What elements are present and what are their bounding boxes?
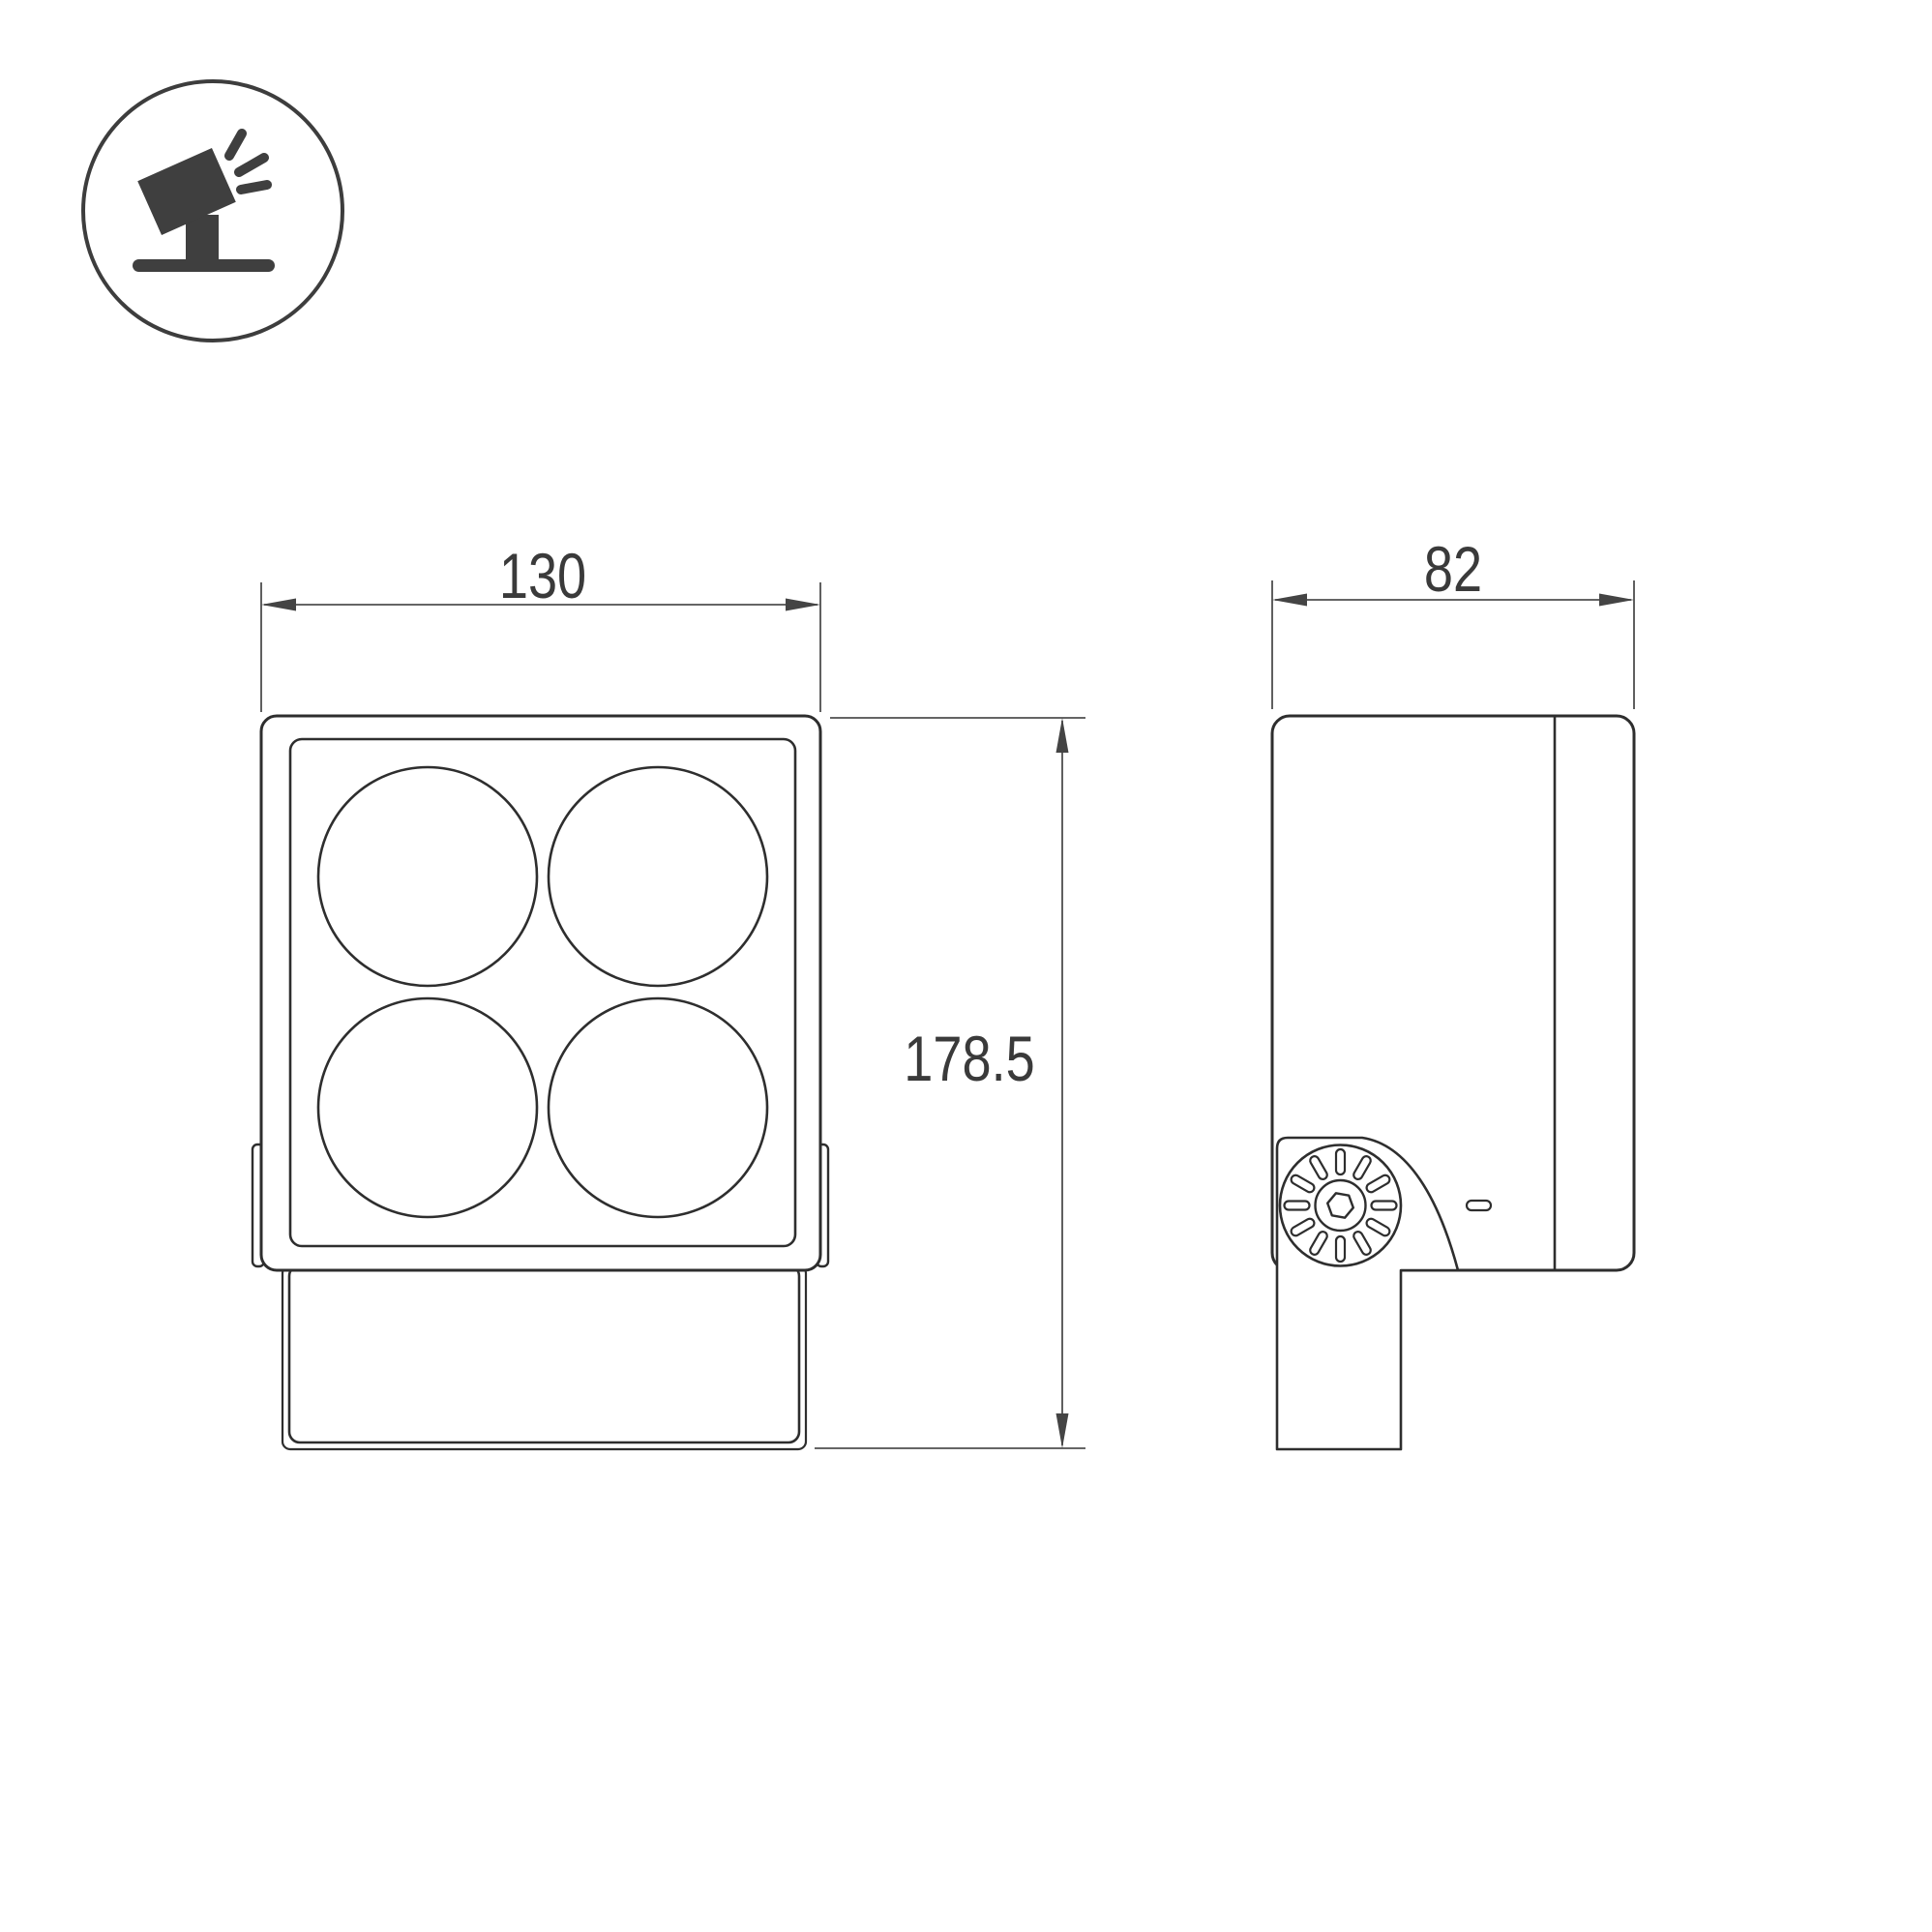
lens-top-left — [318, 767, 537, 986]
arrow-down-icon — [1056, 1413, 1069, 1448]
dim-label-overall-height: 178.5 — [904, 1023, 1034, 1094]
side-adjustment-knob — [1280, 1145, 1401, 1266]
arrow-left-icon — [261, 599, 296, 611]
dim-label-side-depth: 82 — [1424, 533, 1482, 605]
side-body-slot — [1467, 1201, 1491, 1210]
drawing-svg: 130 82 178.5 — [0, 0, 1932, 1932]
front-view — [253, 716, 828, 1449]
icon-light-rays — [229, 134, 267, 190]
side-view — [1272, 716, 1634, 1449]
arrow-left-icon — [1272, 594, 1307, 607]
dimension-side-depth: 82 — [1272, 533, 1634, 709]
arrow-up-icon — [1056, 718, 1069, 753]
arrow-right-icon — [1599, 594, 1634, 607]
dimension-front-width: 130 — [261, 540, 820, 712]
front-lower-housing — [289, 1265, 799, 1442]
knob-hex-socket — [1327, 1193, 1353, 1217]
dimension-overall-height: 178.5 — [815, 718, 1085, 1448]
dim-label-front-width: 130 — [499, 540, 586, 611]
dimension-drawing: 130 82 178.5 — [0, 0, 1932, 1932]
floodlight-badge-icon — [83, 81, 342, 341]
lens-bottom-right — [549, 998, 767, 1217]
icon-lamp-head — [137, 148, 236, 235]
arrow-right-icon — [786, 599, 820, 611]
lens-top-right — [549, 767, 767, 986]
lens-bottom-left — [318, 998, 537, 1217]
